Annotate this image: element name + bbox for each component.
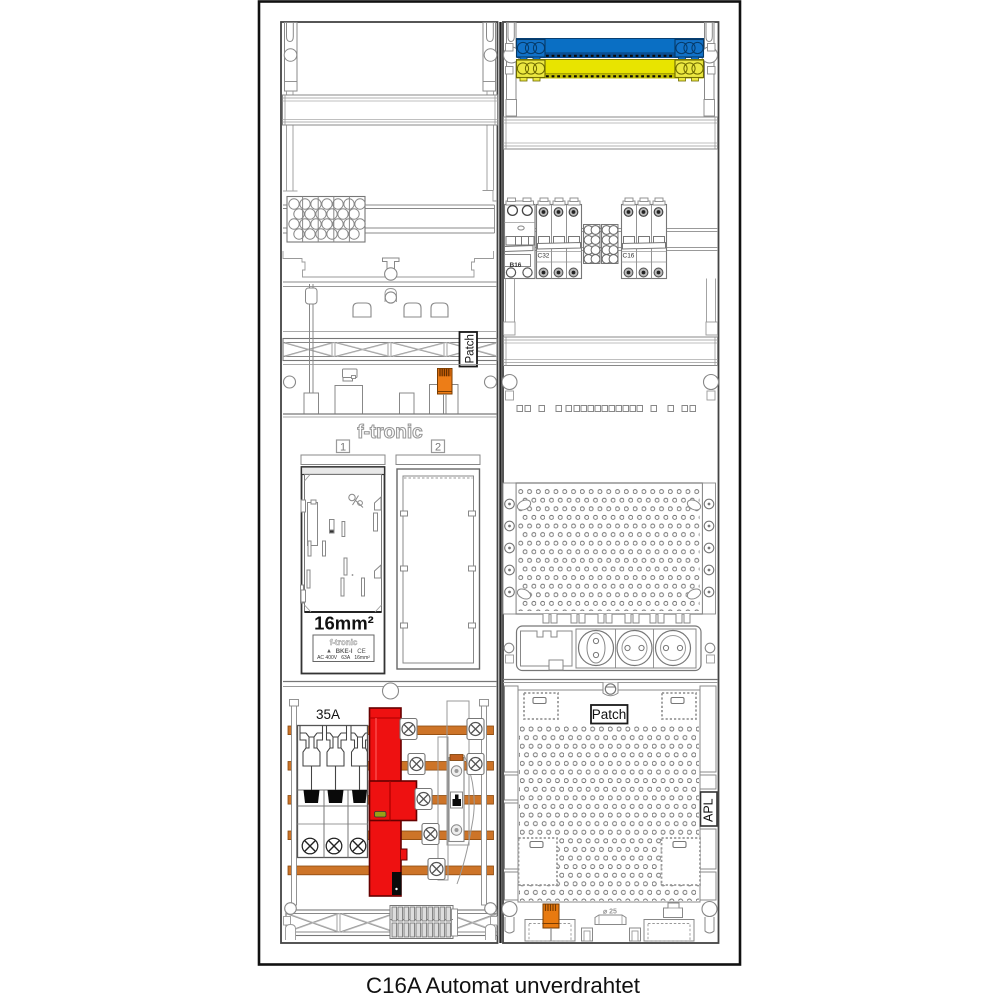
svg-text:C16: C16 <box>623 253 635 260</box>
svg-text:35A: 35A <box>316 707 340 722</box>
svg-text:APL: APL <box>702 798 716 822</box>
svg-text:Patch: Patch <box>592 707 627 722</box>
svg-text:⌀ 25: ⌀ 25 <box>603 909 617 916</box>
svg-text:C32: C32 <box>538 253 550 260</box>
svg-text:2: 2 <box>435 442 441 454</box>
svg-text:1: 1 <box>340 442 346 454</box>
svg-text:f-tronic: f-tronic <box>330 638 358 647</box>
svg-text:▲: ▲ <box>326 649 332 655</box>
svg-text:AC 400V 63A 16mm²: AC 400V 63A 16mm² <box>317 655 370 661</box>
svg-text:Patch: Patch <box>465 334 477 363</box>
svg-text:16mm²: 16mm² <box>314 613 374 634</box>
svg-text:f-tronic: f-tronic <box>357 422 423 443</box>
svg-text:C16A Automat unverdrahtet: C16A Automat unverdrahtet <box>366 973 641 998</box>
